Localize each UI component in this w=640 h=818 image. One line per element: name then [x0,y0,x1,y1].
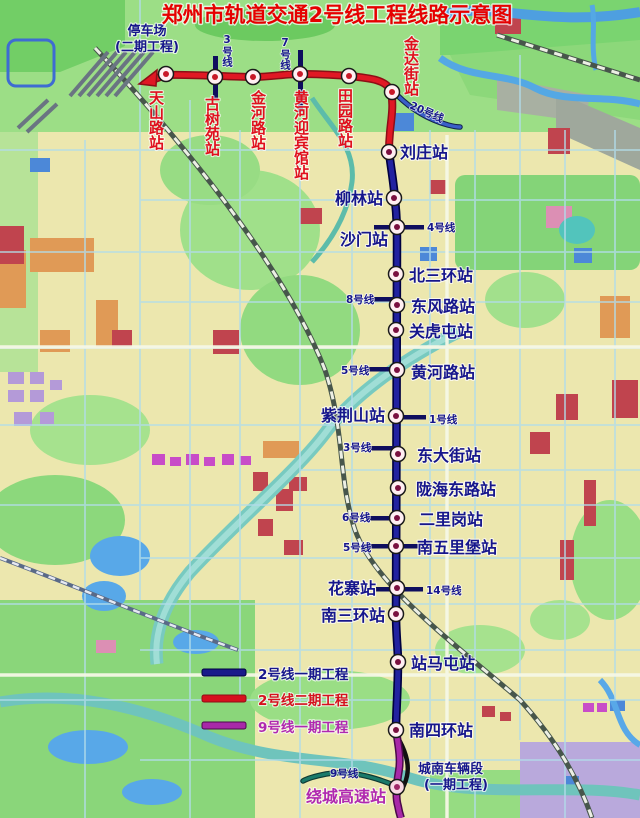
station-marker [387,191,402,206]
interchange-label: 1号线 [429,413,458,426]
interchange-label: 3号线 [343,441,372,454]
interchange-label: 14号线 [426,584,462,597]
interchange-label: 6号线 [342,511,371,524]
station-marker [389,323,404,338]
station-label: 柳林站 [335,189,383,208]
station-label: 东风路站 [411,297,475,316]
station-label: 金河路站 [249,89,267,151]
legend-label: 2号线二期工程 [258,692,349,709]
station-label: 紫荆山站 [321,406,385,425]
station-marker [382,145,397,160]
depot-note-line1: 城南车辆段 [418,761,483,777]
station-label: 南四环站 [409,721,473,740]
station-label: 东大街站 [417,446,481,465]
station-marker [390,511,405,526]
station-marker [208,70,223,85]
station-label: 金达街站 [402,35,420,97]
station-marker [390,780,405,795]
station-label: 田园路站 [336,88,354,149]
station-marker [391,447,406,462]
station-marker [342,69,357,84]
depot-note-line2: (一期工程) [424,778,488,793]
parking-note-line1: 停车场 [127,23,166,39]
station-label: 天山路站 [147,90,165,151]
station-marker [385,85,400,100]
station-label: 花寨站 [328,579,376,598]
station-label: 绕城高速站 [306,787,386,806]
station-label: 黄河路站 [411,363,475,382]
station-label: 刘庄站 [400,143,448,162]
station-marker [391,655,406,670]
station-marker [390,363,405,378]
station-marker [389,607,404,622]
station-marker [389,409,404,424]
station-label: 古树苑站 [203,95,221,157]
page-title: 郑州市轨道交通2号线工程线路示意图 [162,3,513,27]
station-label: 沙门站 [340,230,388,249]
interchange-label: 9号线 [330,767,359,780]
station-marker [391,481,406,496]
station-marker [389,267,404,282]
interchange-label: 3号线 [221,34,233,68]
station-marker [390,220,405,235]
parking-note-line2: (二期工程) [115,40,179,55]
station-label: 二里岗站 [419,510,483,529]
station-label: 关虎屯站 [409,322,473,341]
interchange-label: 4号线 [427,221,456,234]
station-label: 陇海东路站 [416,480,496,499]
station-marker [246,70,261,85]
interchange-label: 7号线 [279,37,291,71]
legend: 2号线一期工程 2号线二期工程 9号线一期工程 [202,666,349,736]
station-label: 南五里堡站 [417,538,497,557]
legend-swatch-line2-phase2 [202,695,246,702]
interchange-label: 5号线 [343,541,372,554]
legend-swatch-line2-phase1 [202,669,246,676]
station-label: 黄河迎宾馆站 [292,89,310,181]
metro-line9 [396,730,401,818]
legend-swatch-line9-phase1 [202,722,246,729]
interchange-label: 5号线 [341,364,370,377]
station-label: 北三环站 [409,266,473,285]
station-marker [159,67,174,82]
station-label: 南三环站 [321,606,385,625]
station-label: 站马屯站 [411,654,475,673]
station-marker [389,539,404,554]
interchange-label: 8号线 [346,293,375,306]
station-marker [390,581,405,596]
metro-map: 天山路站 古树苑站 金河路站 黄河迎宾馆站 田园路站 金达街站 刘庄站 柳林站 … [0,0,640,818]
station-marker [390,298,405,313]
station-marker [389,723,404,738]
station-marker [293,67,308,82]
legend-label: 2号线一期工程 [258,666,349,683]
legend-label: 9号线一期工程 [258,719,349,736]
